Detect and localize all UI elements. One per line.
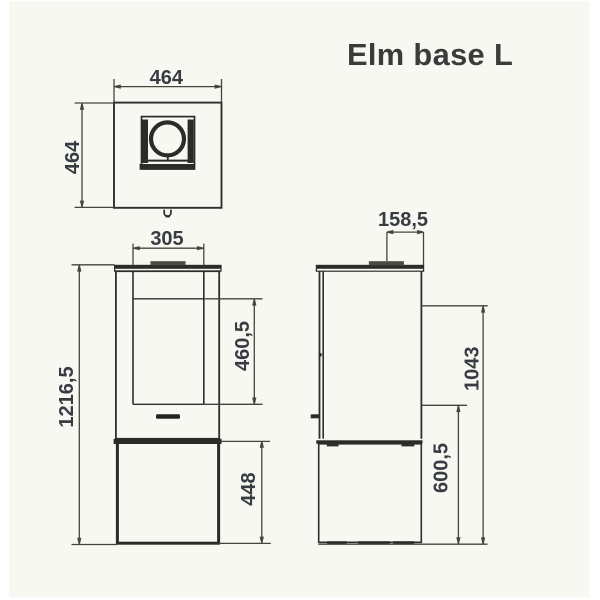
svg-text:305: 305 [150, 228, 183, 250]
svg-text:460,5: 460,5 [232, 321, 254, 371]
svg-text:448: 448 [238, 472, 260, 505]
svg-text:Elm base L: Elm base L [347, 37, 513, 72]
svg-text:464: 464 [150, 67, 184, 89]
svg-text:158,5: 158,5 [378, 209, 428, 231]
svg-text:464: 464 [62, 140, 84, 174]
svg-text:600,5: 600,5 [431, 443, 453, 493]
svg-text:1216,5: 1216,5 [56, 366, 78, 427]
svg-text:1043: 1043 [462, 347, 484, 392]
